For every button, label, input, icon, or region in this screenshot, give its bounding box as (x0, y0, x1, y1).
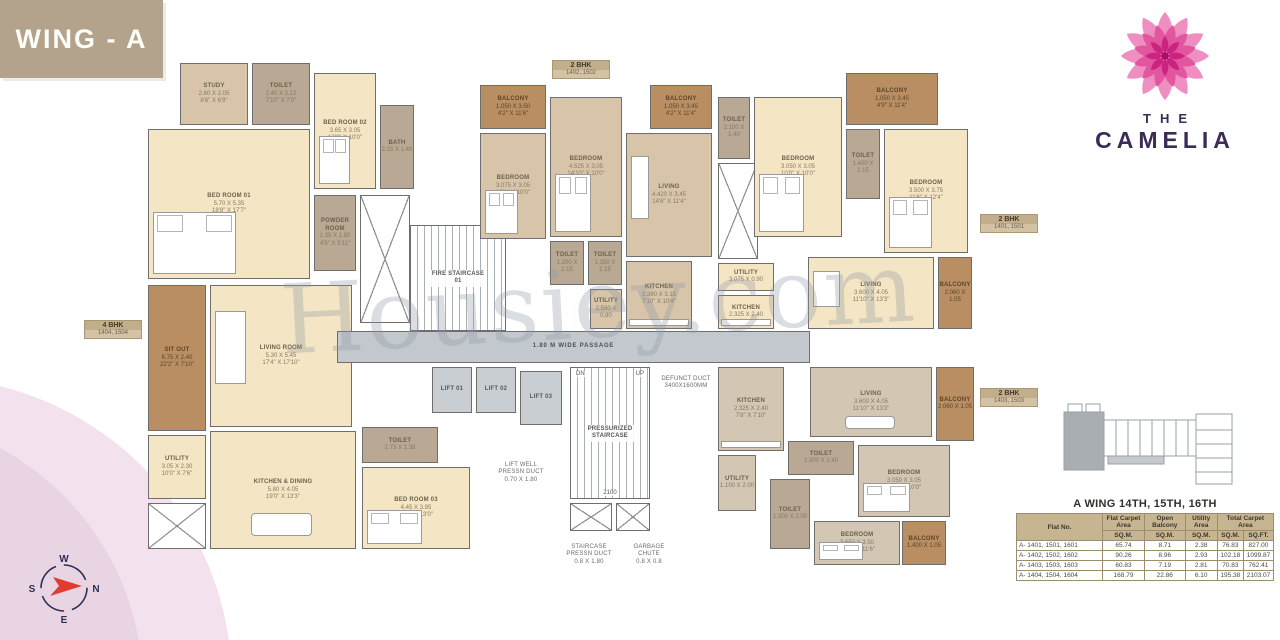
room-dim-study-1: 8'6" X 6'9" (200, 98, 227, 105)
room-duct-01 (360, 195, 410, 323)
furniture-bed-icon (153, 212, 236, 274)
room-label-bedroom-05: BEDROOM (570, 156, 603, 164)
room-dim-toilet-01-0: 2.40 X 2.12 (266, 91, 297, 98)
room-label-living-03: LIVING (860, 391, 881, 399)
room-label-lift-01: LIFT 01 (441, 386, 463, 394)
room-utility-04: UTILITY1.100 X 2.00 (718, 455, 756, 511)
room-dim-living-03-0: 3.600 X 4.05 (854, 399, 888, 406)
furniture-sofa-icon (215, 311, 246, 384)
room-toilet-08: TOILET1.300 X 2.00 (770, 479, 810, 549)
room-study: STUDY2.60 X 2.058'6" X 6'9" (180, 63, 248, 125)
brand-logo: THE CAMELIA (1085, 8, 1245, 154)
room-balcony-02: BALCONY1.050 X 3.454'2" X 11'4" (650, 85, 712, 129)
col-unit-2: SQ.M. (1185, 531, 1217, 541)
room-lift-well-duct: LIFT WELL PRESSN DUCT 0.70 X 1.80 (474, 451, 568, 495)
table-row: A- 1404, 1504, 1604168.7922.866.10195.38… (1017, 571, 1274, 581)
badge-left: 4 BHK1404, 1504 (84, 320, 142, 339)
col-unit-1: SQ.M. (1145, 531, 1186, 541)
room-utility-01: UTILITY3.05 X 2.3010'0" X 7'6" (148, 435, 206, 499)
room-dim-sit-out-0: 6.75 X 2.40 (162, 355, 193, 362)
room-dim-bedroom-05-0: 4.525 X 3.05 (569, 164, 603, 171)
area-table-title: A WING 14TH, 15TH, 16TH (1016, 498, 1274, 510)
cell-2-1: 60.83 (1103, 561, 1145, 571)
room-label-bedroom-03: BED ROOM 03 (394, 497, 438, 505)
room-label-defunct-duct: DEFUNCT DUCT 3400X1600MM (661, 376, 710, 391)
room-label-bedroom-07: BEDROOM (910, 180, 943, 188)
cell-3-3: 6.10 (1185, 571, 1217, 581)
room-sit-out: SIT OUT6.75 X 2.4022'2" X 7'10" (148, 285, 206, 431)
furniture-bed-icon (555, 174, 591, 232)
room-label-powder-room: POWDER ROOM (315, 218, 355, 233)
furniture-counter-icon (721, 319, 771, 326)
room-bedroom-05: BEDROOM4.525 X 3.0514'10" X 10'0" (550, 97, 622, 237)
room-dim-balcony-03-0: 1.050 X 3.45 (875, 96, 909, 103)
room-label-toilet-01: TOILET (270, 83, 292, 91)
room-bedroom-07: BEDROOM3.500 X 3.7511'6" X 12'4" (884, 129, 968, 253)
room-label-balcony-03: BALCONY (876, 88, 907, 96)
room-powder-room: POWDER ROOM1.35 X 1.804'5" X 5'11" (314, 195, 356, 271)
room-bedroom-03: BED ROOM 034.45 X 3.9514'7" X 13'0" (362, 467, 470, 549)
cell-2-3: 2.81 (1185, 561, 1217, 571)
room-staircase-duct: STAIRCASE PRESSN DUCT 0.8 X 1.80 (556, 537, 622, 573)
cell-0-5: 827.00 (1243, 541, 1273, 551)
wing-title-box: WING - A (0, 0, 163, 78)
cell-2-0: A- 1403, 1503, 1603 (1017, 561, 1103, 571)
room-kitchen-01: KITCHEN2.380 X 3.157'10" X 10'4" (626, 261, 692, 329)
stair-dim-label: 2100 (602, 490, 617, 496)
room-bedroom-06: BEDROOM3.050 X 3.0510'0" X 10'0" (754, 97, 842, 237)
cell-1-1: 90.26 (1103, 551, 1145, 561)
cell-0-4: 76.83 (1217, 541, 1243, 551)
room-dim-study-0: 2.60 X 2.05 (199, 91, 230, 98)
room-dim-balcony-05-0: 2.060 X 1.05 (938, 404, 972, 411)
room-dim-utility-02-0: 2.590 X 0.90 (591, 306, 621, 320)
room-dim-bath-01-0: 2.15 X 1.40 (382, 147, 413, 154)
table-row: A- 1403, 1503, 160360.837.192.8170.83762… (1017, 561, 1274, 571)
room-label-kitchen-02: KITCHEN (732, 305, 760, 313)
room-label-toilet-06: TOILET (852, 153, 874, 161)
room-dim-kitchen-dining-1: 19'0" X 13'3" (266, 494, 300, 501)
room-dim-kitchen-03-1: 7'8" X 7'10" (736, 413, 767, 420)
cell-2-5: 762.41 (1243, 561, 1273, 571)
cell-3-5: 2103.07 (1243, 571, 1273, 581)
furniture-bed-icon (367, 510, 422, 544)
room-living-03: LIVING3.600 X 4.0511'10" X 13'3" (810, 367, 932, 437)
logo-the: THE (1085, 111, 1245, 126)
cell-0-3: 2.38 (1185, 541, 1217, 551)
compass-arrow (50, 577, 82, 596)
room-label-living-room: LIVING ROOM (260, 345, 303, 353)
furniture-counter-icon (629, 319, 689, 326)
area-table-section: A WING 14TH, 15TH, 16TH Flat No.Flat Car… (1016, 498, 1274, 581)
compass-e: E (61, 615, 68, 626)
room-dim-utility-01-1: 10'0" X 7'6" (162, 471, 193, 478)
room-dim-toilet-05-0: 2.100 X 1.40 (719, 125, 749, 139)
room-duct-02 (148, 503, 206, 549)
room-fire-staircase: FIRE STAIRCASE 01 (410, 225, 506, 331)
compass-n: N (92, 584, 99, 595)
cell-3-0: A- 1404, 1504, 1604 (1017, 571, 1103, 581)
stair-dn-label: DN (575, 371, 586, 377)
room-dim-living-03-1: 11'10" X 13'3" (853, 406, 890, 413)
table-row: A- 1401, 1501, 160165.748.712.3876.83827… (1017, 541, 1274, 551)
cell-0-0: A- 1401, 1501, 1601 (1017, 541, 1103, 551)
compass-icon: W N E S (26, 550, 102, 626)
room-balcony-06: BALCONY1.400 X 1.05 (902, 521, 946, 565)
cell-3-2: 22.86 (1145, 571, 1186, 581)
furniture-bed-icon (889, 197, 932, 248)
col-unit-3: SQ.M. (1217, 531, 1243, 541)
room-label-bedroom-02: BED ROOM 02 (323, 120, 367, 128)
room-label-utility-04: UTILITY (725, 476, 749, 484)
furniture-bed-icon (319, 136, 350, 184)
cell-1-4: 102.18 (1217, 551, 1243, 561)
cell-2-2: 7.19 (1145, 561, 1186, 571)
compass-s: S (29, 584, 36, 595)
room-dim-living-02-1: 11'10" X 13'3" (853, 297, 890, 304)
room-dim-balcony-04-0: 2.060 X 1.05 (939, 290, 971, 304)
room-label-lift-well-duct: LIFT WELL PRESSN DUCT 0.70 X 1.80 (498, 462, 543, 485)
cell-1-2: 8.96 (1145, 551, 1186, 561)
room-lift-01: LIFT 01 (432, 367, 472, 413)
room-label-balcony-04: BALCONY (939, 282, 970, 290)
compass-w: W (59, 554, 69, 565)
room-garbage-chute: GARBAGE CHUTE 0.8 X 0.8 (626, 537, 672, 573)
room-passage: 1.80 M WIDE PASSAGE (337, 331, 810, 363)
room-defunct-duct: DEFUNCT DUCT 3400X1600MM (654, 371, 718, 395)
col-unit-4: SQ.FT. (1243, 531, 1273, 541)
room-dim-bedroom-07-0: 3.500 X 3.75 (909, 188, 943, 195)
badge-top-type: 2 BHK (553, 61, 609, 70)
furniture-bed-icon (819, 542, 863, 560)
room-dim-bedroom-06-0: 3.050 X 3.05 (781, 164, 815, 171)
room-dim-balcony-06-0: 1.400 X 1.05 (907, 543, 941, 550)
room-label-bedroom-01: BED ROOM 01 (207, 193, 251, 201)
room-label-lift-02: LIFT 02 (485, 386, 507, 394)
room-dim-kitchen-01-1: 7'10" X 10'4" (642, 299, 676, 306)
room-dim-balcony-03-1: 4'9" X 11'4" (877, 103, 907, 110)
room-dim-toilet-04-0: 1.350 X 2.15 (589, 260, 621, 274)
room-dim-kitchen-dining-0: 5.80 X 4.05 (268, 487, 299, 494)
room-duct-04 (616, 503, 650, 531)
col-group-3: Total Carpet Area (1217, 514, 1273, 531)
room-pressurized-staircase: PRESSURIZED STAIRCASEDNUP2100 (570, 367, 650, 499)
room-toilet-07: TOILET2.300 X 1.40 (788, 441, 854, 475)
cell-2-4: 70.83 (1217, 561, 1243, 571)
room-bedroom-01: BED ROOM 015.70 X 5.3518'8" X 17'7" (148, 129, 310, 279)
room-dim-toilet-03-0: 1.200 X 2.15 (551, 260, 583, 274)
furniture-sofa-icon (631, 156, 649, 219)
cell-1-5: 1099.87 (1243, 551, 1273, 561)
room-label-staircase-duct: STAIRCASE PRESSN DUCT 0.8 X 1.80 (566, 544, 611, 567)
room-label-balcony-02: BALCONY (665, 96, 696, 104)
room-living-01: LIVING4.420 X 3.4514'6" X 11'4" (626, 133, 712, 257)
room-toilet-04: TOILET1.350 X 2.15 (588, 241, 622, 285)
cell-0-2: 8.71 (1145, 541, 1186, 551)
room-dim-balcony-02-1: 4'2" X 11'4" (666, 111, 696, 118)
compass: W N E S (26, 550, 102, 626)
badge-left-flats: 1404, 1504 (85, 330, 141, 338)
furniture-counter-icon (721, 441, 781, 448)
room-balcony-01: BALCONY1.050 X 3.504'2" X 11'6" (480, 85, 546, 129)
room-label-bath-01: BATH (388, 140, 405, 148)
room-balcony-04: BALCONY2.060 X 1.05 (938, 257, 972, 329)
room-label-pressurized-staircase: PRESSURIZED STAIRCASE (586, 425, 635, 442)
camelia-flower-icon (1113, 8, 1217, 104)
room-utility-02: UTILITY2.590 X 0.90 (590, 289, 622, 329)
room-dim-utility-03-0: 3.075 X 0.90 (729, 277, 763, 284)
room-kitchen-02: KITCHEN2.325 X 2.40 (718, 295, 774, 329)
room-label-toilet-08: TOILET (779, 507, 801, 515)
room-dim-bedroom-04-0: 3.075 X 3.05 (496, 183, 530, 190)
room-label-utility-01: UTILITY (165, 456, 189, 464)
room-label-utility-03: UTILITY (734, 270, 758, 278)
room-label-bedroom-04: BEDROOM (497, 175, 530, 183)
room-label-toilet-04: TOILET (594, 252, 616, 260)
room-duct-05 (718, 163, 758, 259)
room-balcony-03: BALCONY1.050 X 3.454'9" X 11'4" (846, 73, 938, 125)
room-label-toilet-02: TOILET (389, 438, 411, 446)
room-toilet-02: TOILET2.73 X 1.38 (362, 427, 438, 463)
room-dim-powder-room-0: 1.35 X 1.80 (320, 233, 351, 240)
room-label-toilet-05: TOILET (723, 117, 745, 125)
room-label-toilet-07: TOILET (810, 451, 832, 459)
floor-plan: STUDY2.60 X 2.058'6" X 6'9"TOILET2.40 X … (140, 55, 1005, 565)
room-toilet-05: TOILET2.100 X 1.40 (718, 97, 750, 159)
room-bedroom-09: BEDROOM3.650 X 3.5011'11" X 11'6" (814, 521, 900, 565)
page: WING - A (0, 0, 1280, 640)
room-dim-sit-out-1: 22'2" X 7'10" (160, 362, 194, 369)
room-bedroom-08: BEDROOM3.050 X 3.0510'0" X 10'0" (858, 445, 950, 517)
area-table: Flat No.Flat Carpet AreaOpen BalconyUtil… (1016, 513, 1274, 581)
room-dim-utility-01-0: 3.05 X 2.30 (162, 464, 193, 471)
room-dim-living-01-1: 14'6" X 11'4" (652, 199, 685, 206)
room-label-balcony-05: BALCONY (939, 397, 970, 405)
room-label-passage: 1.80 M WIDE PASSAGE (533, 343, 614, 351)
room-label-bedroom-08: BEDROOM (888, 470, 921, 478)
room-dim-powder-room-1: 4'5" X 5'11" (320, 241, 350, 248)
room-dim-toilet-01-1: 7'10" X 7'0" (266, 98, 297, 105)
room-balcony-05: BALCONY2.060 X 1.05 (936, 367, 974, 441)
room-label-living-02: LIVING (860, 282, 881, 290)
room-dim-bedroom-01-0: 5.70 X 5.35 (214, 201, 245, 208)
badge-right-1-type: 2 BHK (981, 215, 1037, 224)
badge-right-2: 2 BHK1403, 1503 (980, 388, 1038, 407)
badge-right-2-type: 2 BHK (981, 389, 1037, 398)
room-living-02: LIVING3.600 X 4.0511'10" X 13'3" (808, 257, 934, 329)
badge-left-type: 4 BHK (85, 321, 141, 330)
cell-0-1: 65.74 (1103, 541, 1145, 551)
room-label-living-01: LIVING (658, 184, 679, 192)
room-label-kitchen-01: KITCHEN (645, 284, 673, 292)
room-living-room: LIVING ROOM5.30 X 5.4517'4" X 17'10" (210, 285, 352, 427)
room-label-bedroom-09: BEDROOM (841, 532, 874, 540)
room-dim-toilet-08-0: 1.300 X 2.00 (773, 514, 807, 521)
room-dim-living-02-0: 3.600 X 4.05 (854, 290, 888, 297)
room-bedroom-02: BED ROOM 023.65 X 3.0512'0" X 10'0" (314, 73, 376, 189)
room-label-utility-02: UTILITY (594, 298, 618, 306)
cell-1-0: A- 1402, 1502, 1602 (1017, 551, 1103, 561)
room-dim-toilet-06-0: 1.400 X 2.15 (847, 161, 879, 175)
col-group-2: Utility Area (1185, 514, 1217, 531)
room-kitchen-03: KITCHEN2.325 X 2.407'8" X 7'10" (718, 367, 784, 451)
room-label-garbage-chute: GARBAGE CHUTE 0.8 X 0.8 (633, 544, 664, 567)
room-dim-toilet-07-0: 2.300 X 1.40 (804, 458, 838, 465)
badge-top: 2 BHK1402, 1502 (552, 60, 610, 79)
room-dim-kitchen-03-0: 2.325 X 2.40 (734, 406, 768, 413)
room-dim-balcony-01-1: 4'2" X 11'6" (498, 111, 528, 118)
room-dim-living-room-0: 5.30 X 5.45 (266, 353, 297, 360)
badge-right-1-flats: 1401, 1501 (981, 224, 1037, 232)
room-bath-01: BATH2.15 X 1.40 (380, 105, 414, 189)
cell-3-4: 195.38 (1217, 571, 1243, 581)
area-table-head: Flat No.Flat Carpet AreaOpen BalconyUtil… (1017, 514, 1274, 541)
room-bedroom-04: BEDROOM3.075 X 3.0510'1" X 10'0" (480, 133, 546, 239)
col-group-0: Flat Carpet Area (1103, 514, 1145, 531)
area-table-body: A- 1401, 1501, 160165.748.712.3876.83827… (1017, 541, 1274, 581)
room-dim-balcony-02-0: 1.050 X 3.45 (664, 104, 698, 111)
room-toilet-06: TOILET1.400 X 2.15 (846, 129, 880, 199)
badge-right-1: 2 BHK1401, 1501 (980, 214, 1038, 233)
room-label-kitchen-03: KITCHEN (737, 398, 765, 406)
room-toilet-03: TOILET1.200 X 2.15 (550, 241, 584, 285)
room-label-balcony-06: BALCONY (908, 536, 939, 544)
room-lift-02: LIFT 02 (476, 367, 516, 413)
room-label-fire-staircase: FIRE STAIRCASE 01 (430, 270, 486, 287)
furniture-bed-icon (863, 483, 910, 512)
badge-top-flats: 1402, 1502 (553, 70, 609, 78)
furniture-bed-icon (485, 190, 518, 234)
room-dim-utility-04-0: 1.100 X 2.00 (720, 483, 754, 490)
col-flat-no: Flat No. (1017, 514, 1103, 541)
room-label-lift-03: LIFT 03 (530, 394, 552, 402)
cell-3-1: 168.79 (1103, 571, 1145, 581)
room-label-study: STUDY (203, 83, 224, 91)
badge-right-2-flats: 1403, 1503 (981, 398, 1037, 406)
room-duct-03 (570, 503, 612, 531)
room-toilet-01: TOILET2.40 X 2.127'10" X 7'0" (252, 63, 310, 125)
room-kitchen-dining: KITCHEN & DINING5.80 X 4.0519'0" X 13'3" (210, 431, 356, 549)
table-row: A- 1402, 1502, 160290.268.962.93102.1810… (1017, 551, 1274, 561)
room-label-balcony-01: BALCONY (497, 96, 528, 104)
logo-name: CAMELIA (1085, 127, 1245, 154)
room-dim-toilet-02-0: 2.73 X 1.38 (385, 445, 416, 452)
room-label-toilet-03: TOILET (556, 252, 578, 260)
room-lift-03: LIFT 03 (520, 371, 562, 425)
room-dim-living-01-0: 4.420 X 3.45 (652, 192, 686, 199)
furniture-dining-icon (845, 416, 895, 430)
wing-title: WING - A (16, 24, 148, 55)
room-dim-living-room-1: 17'4" X 17'10" (262, 360, 299, 367)
furniture-bed-icon (759, 174, 804, 232)
room-label-sit-out: SIT OUT (164, 347, 189, 355)
key-plan (1058, 396, 1254, 492)
room-label-kitchen-dining: KITCHEN & DINING (254, 479, 313, 487)
room-dim-bedroom-02-0: 3.65 X 3.05 (330, 128, 361, 135)
room-label-bedroom-06: BEDROOM (782, 156, 815, 164)
room-dim-balcony-01-0: 1.050 X 3.50 (496, 104, 530, 111)
furniture-sofa-icon (813, 271, 840, 307)
col-group-1: Open Balcony (1145, 514, 1186, 531)
room-utility-03: UTILITY3.075 X 0.90 (718, 263, 774, 291)
col-unit-0: SQ.M. (1103, 531, 1145, 541)
stair-up-label: UP (635, 371, 645, 377)
room-dim-kitchen-01-0: 2.380 X 3.15 (642, 292, 676, 299)
furniture-dining-icon (251, 513, 311, 536)
cell-1-3: 2.93 (1185, 551, 1217, 561)
